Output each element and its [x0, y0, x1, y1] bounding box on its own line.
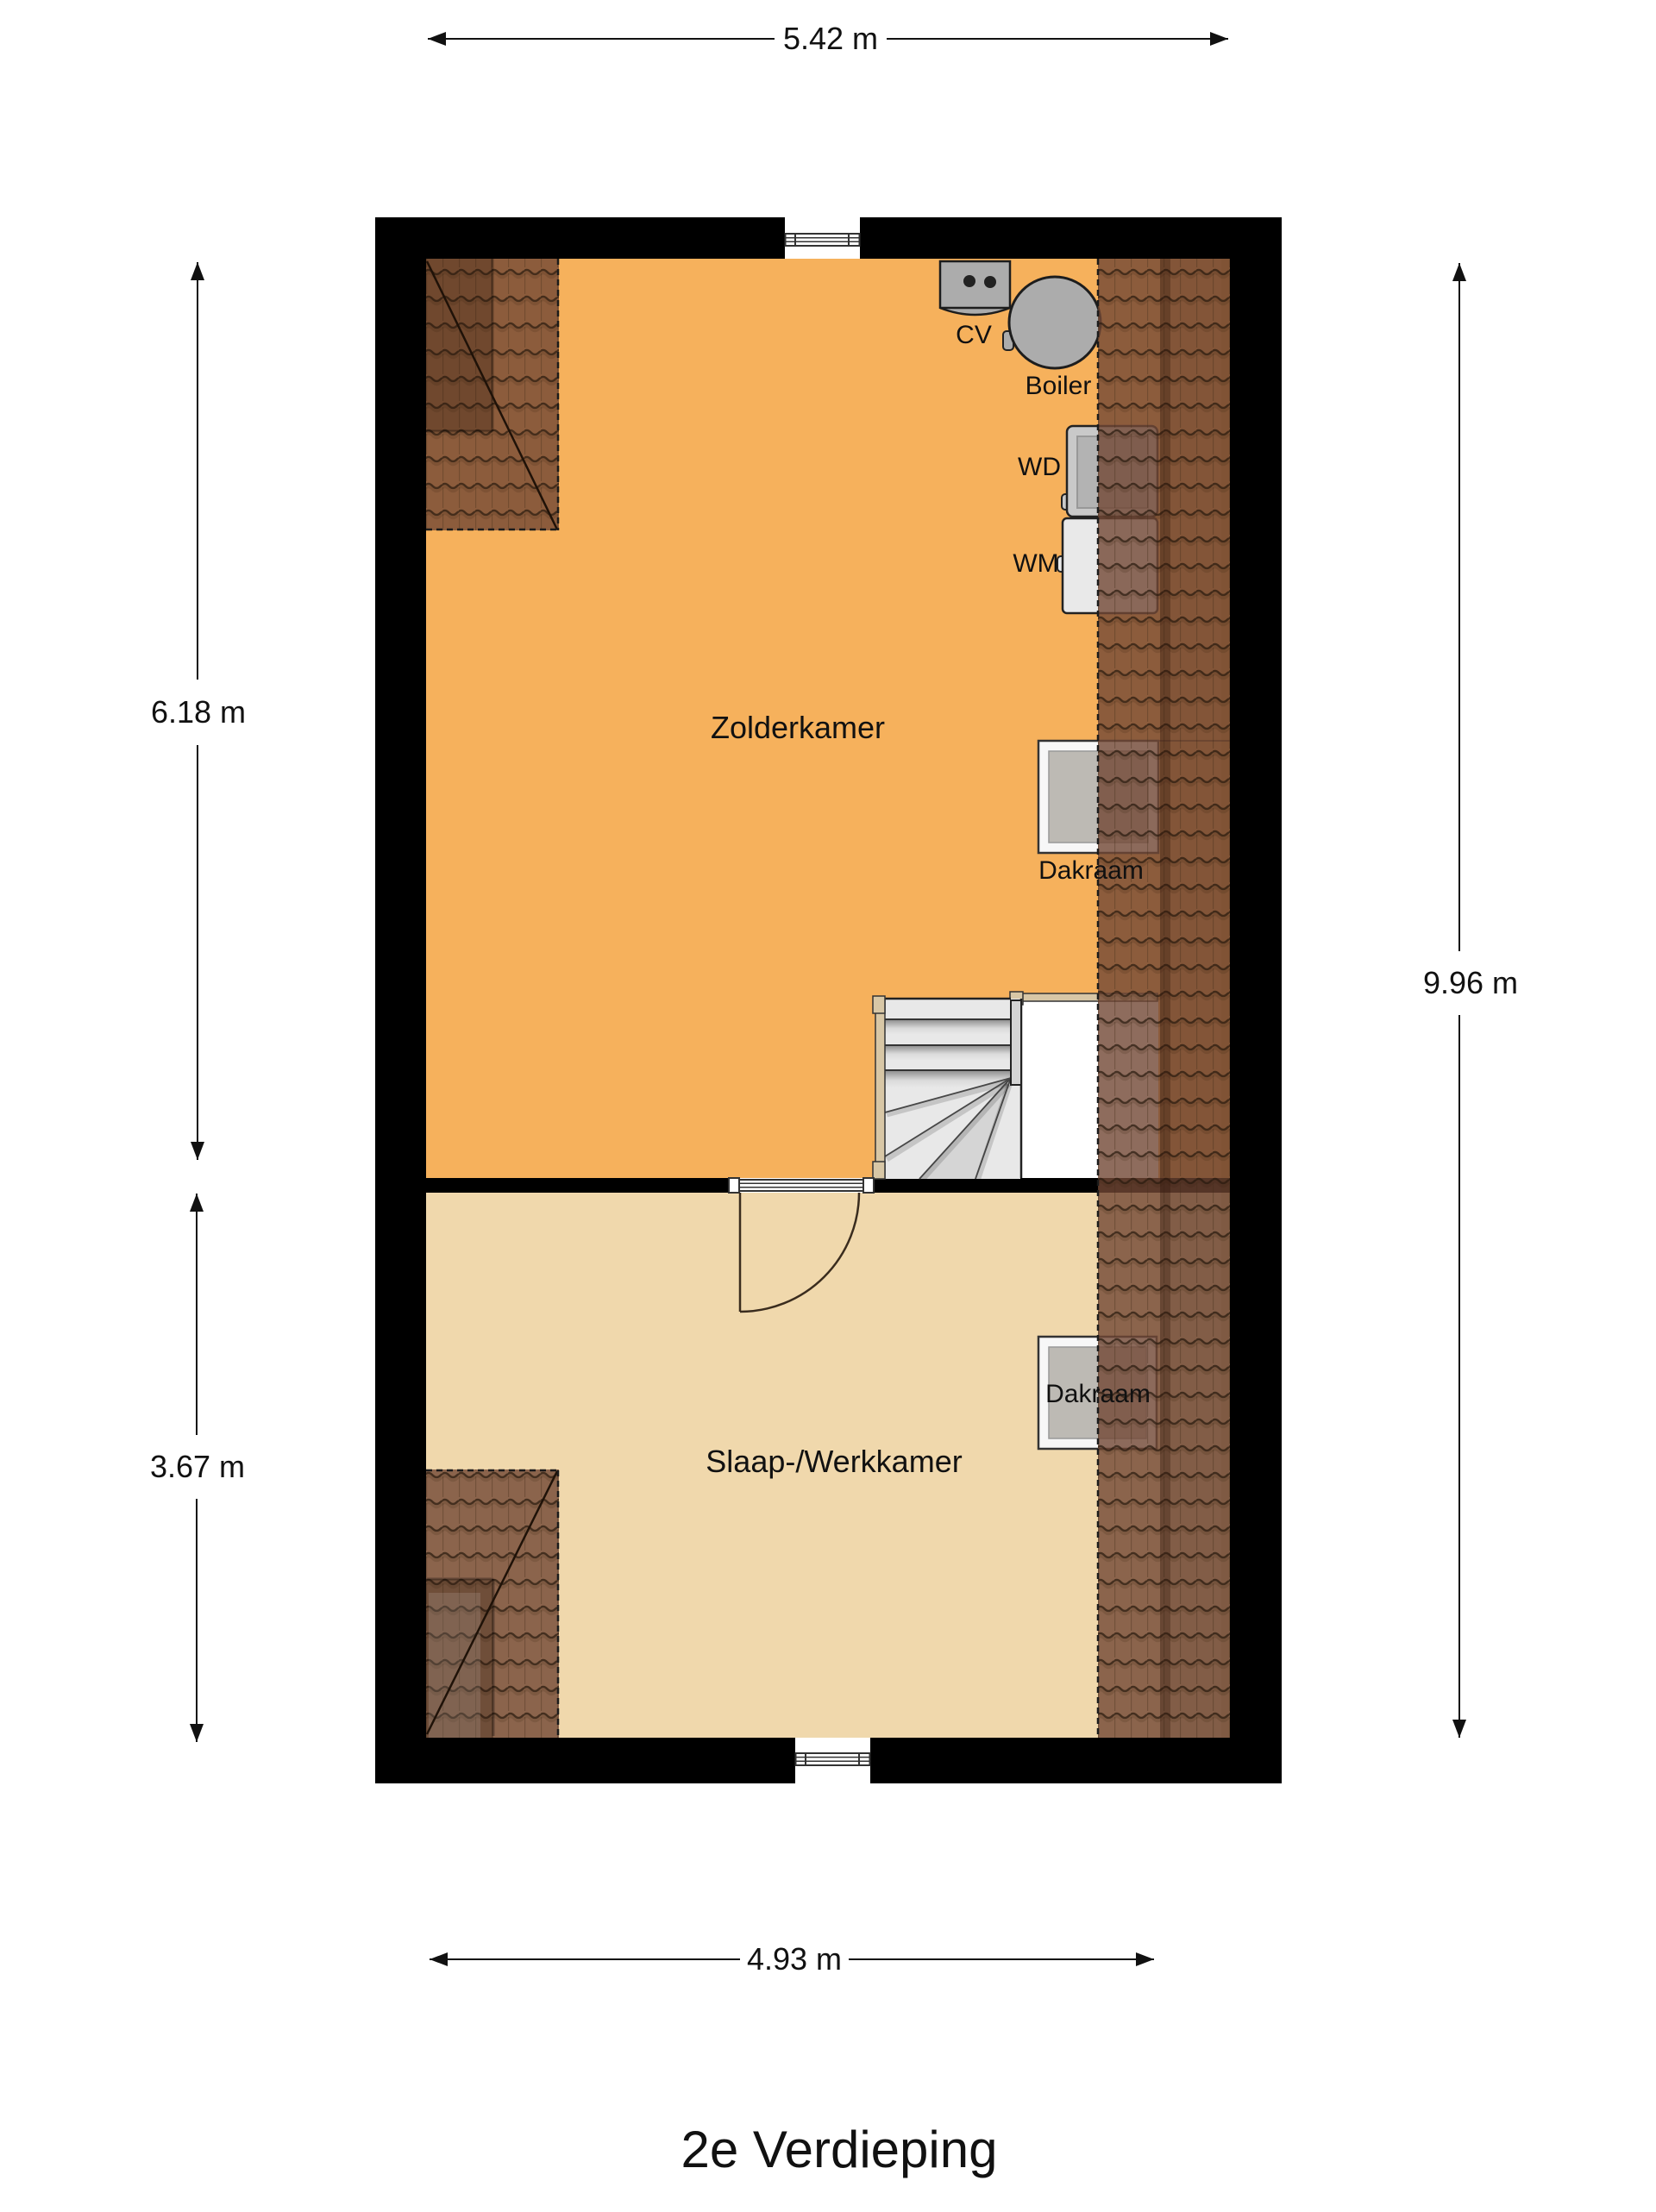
svg-text:3.67 m: 3.67 m [150, 1449, 245, 1484]
svg-text:9.96 m: 9.96 m [1423, 965, 1518, 1000]
svg-text:WM: WM [1013, 549, 1058, 578]
svg-text:4.93 m: 4.93 m [747, 1941, 842, 1977]
svg-text:Dakraam: Dakraam [1038, 856, 1144, 885]
svg-text:Zolderkamer: Zolderkamer [711, 710, 885, 745]
svg-text:Dakraam: Dakraam [1045, 1380, 1151, 1408]
svg-text:Boiler: Boiler [1026, 372, 1092, 400]
svg-text:CV: CV [956, 321, 992, 349]
svg-text:6.18 m: 6.18 m [151, 694, 246, 730]
svg-text:Slaap-/Werkkamer: Slaap-/Werkkamer [706, 1444, 962, 1479]
svg-text:WD: WD [1018, 453, 1061, 481]
svg-text:2e Verdieping: 2e Verdieping [681, 2121, 998, 2178]
svg-text:5.42 m: 5.42 m [783, 21, 878, 56]
